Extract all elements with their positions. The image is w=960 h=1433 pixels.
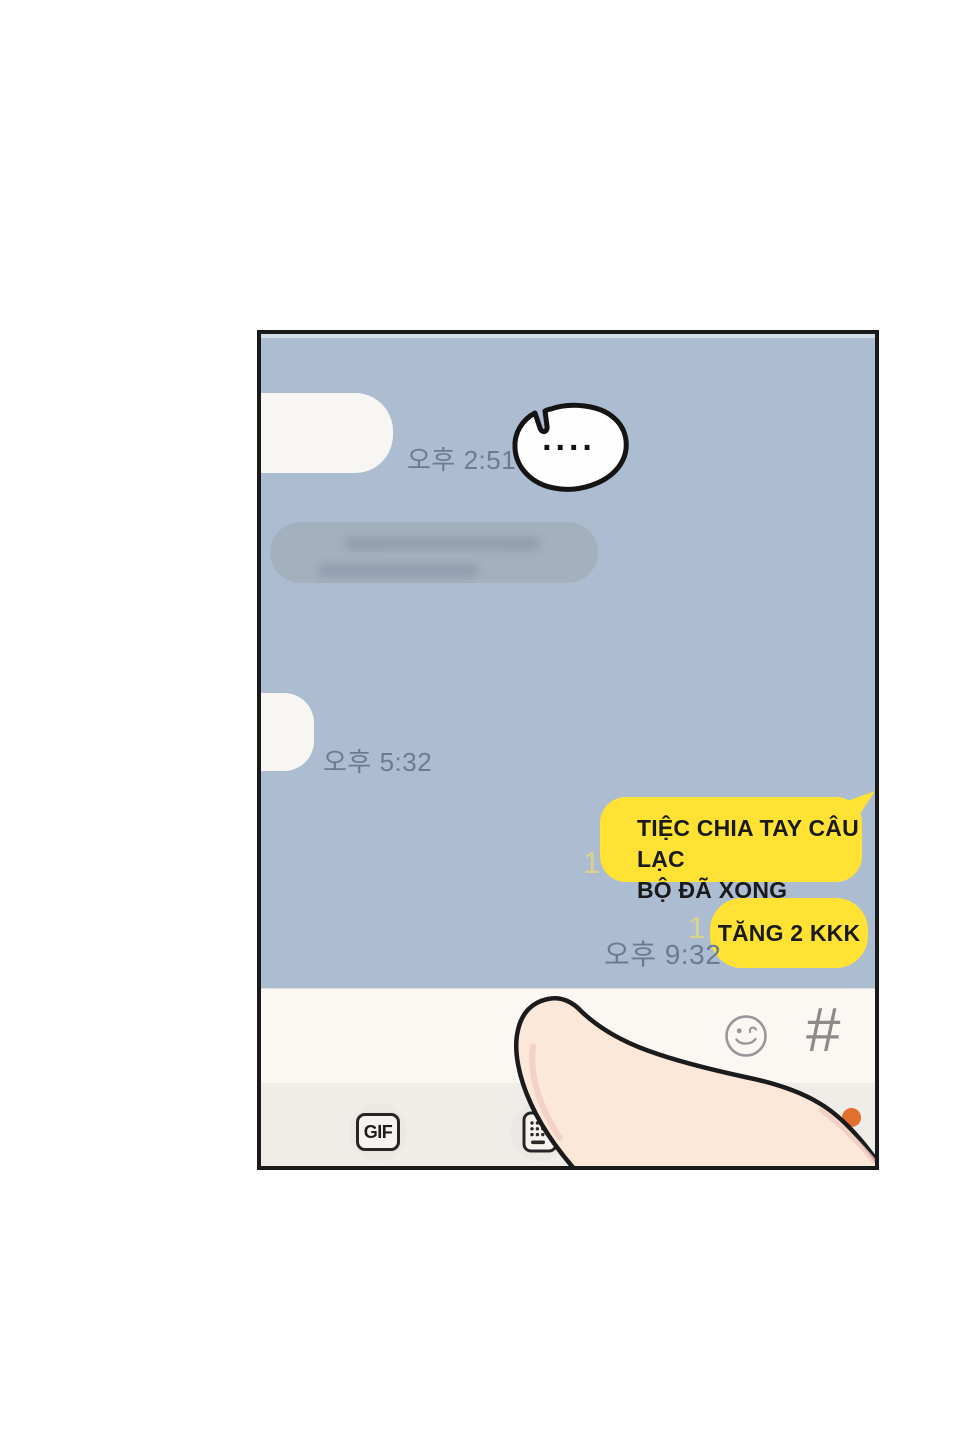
hashtag-icon[interactable]: # <box>806 1000 840 1062</box>
outgoing-bubble-2[interactable]: TĂNG 2 KKK <box>710 898 868 968</box>
emoji-smiley-icon[interactable] <box>723 1013 769 1059</box>
message-time-3: 오후 9:32 <box>604 941 721 969</box>
message-line-1: TIỆC CHIA TAY CÂU LẠC <box>637 813 862 875</box>
message-time-2: 오후 5:32 <box>323 748 432 776</box>
muted-bubble[interactable] <box>270 522 598 583</box>
muted-text-smudge <box>318 564 478 577</box>
muted-text-smudge <box>345 537 540 550</box>
incoming-bubble-2[interactable] <box>261 693 314 771</box>
outgoing-bubble-1[interactable]: TIỆC CHIA TAY CÂU LẠC BỘ ĐÃ XONG <box>600 797 862 882</box>
chat-panel: 오후 2:51 .... 오후 5:32 TIỆC CHIA TAY CÂU L… <box>257 330 879 1170</box>
message-text: TĂNG 2 KKK <box>718 920 861 947</box>
unread-count-1: 1 <box>583 847 600 879</box>
composer-bar <box>261 988 875 1083</box>
gif-label: GIF <box>356 1113 400 1151</box>
page: 오후 2:51 .... 오후 5:32 TIỆC CHIA TAY CÂU L… <box>0 0 960 1433</box>
gif-button[interactable]: GIF <box>349 1103 407 1161</box>
panel-top-highlight <box>261 334 875 338</box>
keyboard-button[interactable] <box>511 1103 569 1161</box>
incoming-bubble-1[interactable] <box>261 393 393 473</box>
thought-dots: .... <box>513 422 625 456</box>
notification-dot <box>842 1108 861 1127</box>
message-time-1: 오후 2:51 <box>407 446 516 474</box>
keyboard-icon <box>522 1111 558 1153</box>
